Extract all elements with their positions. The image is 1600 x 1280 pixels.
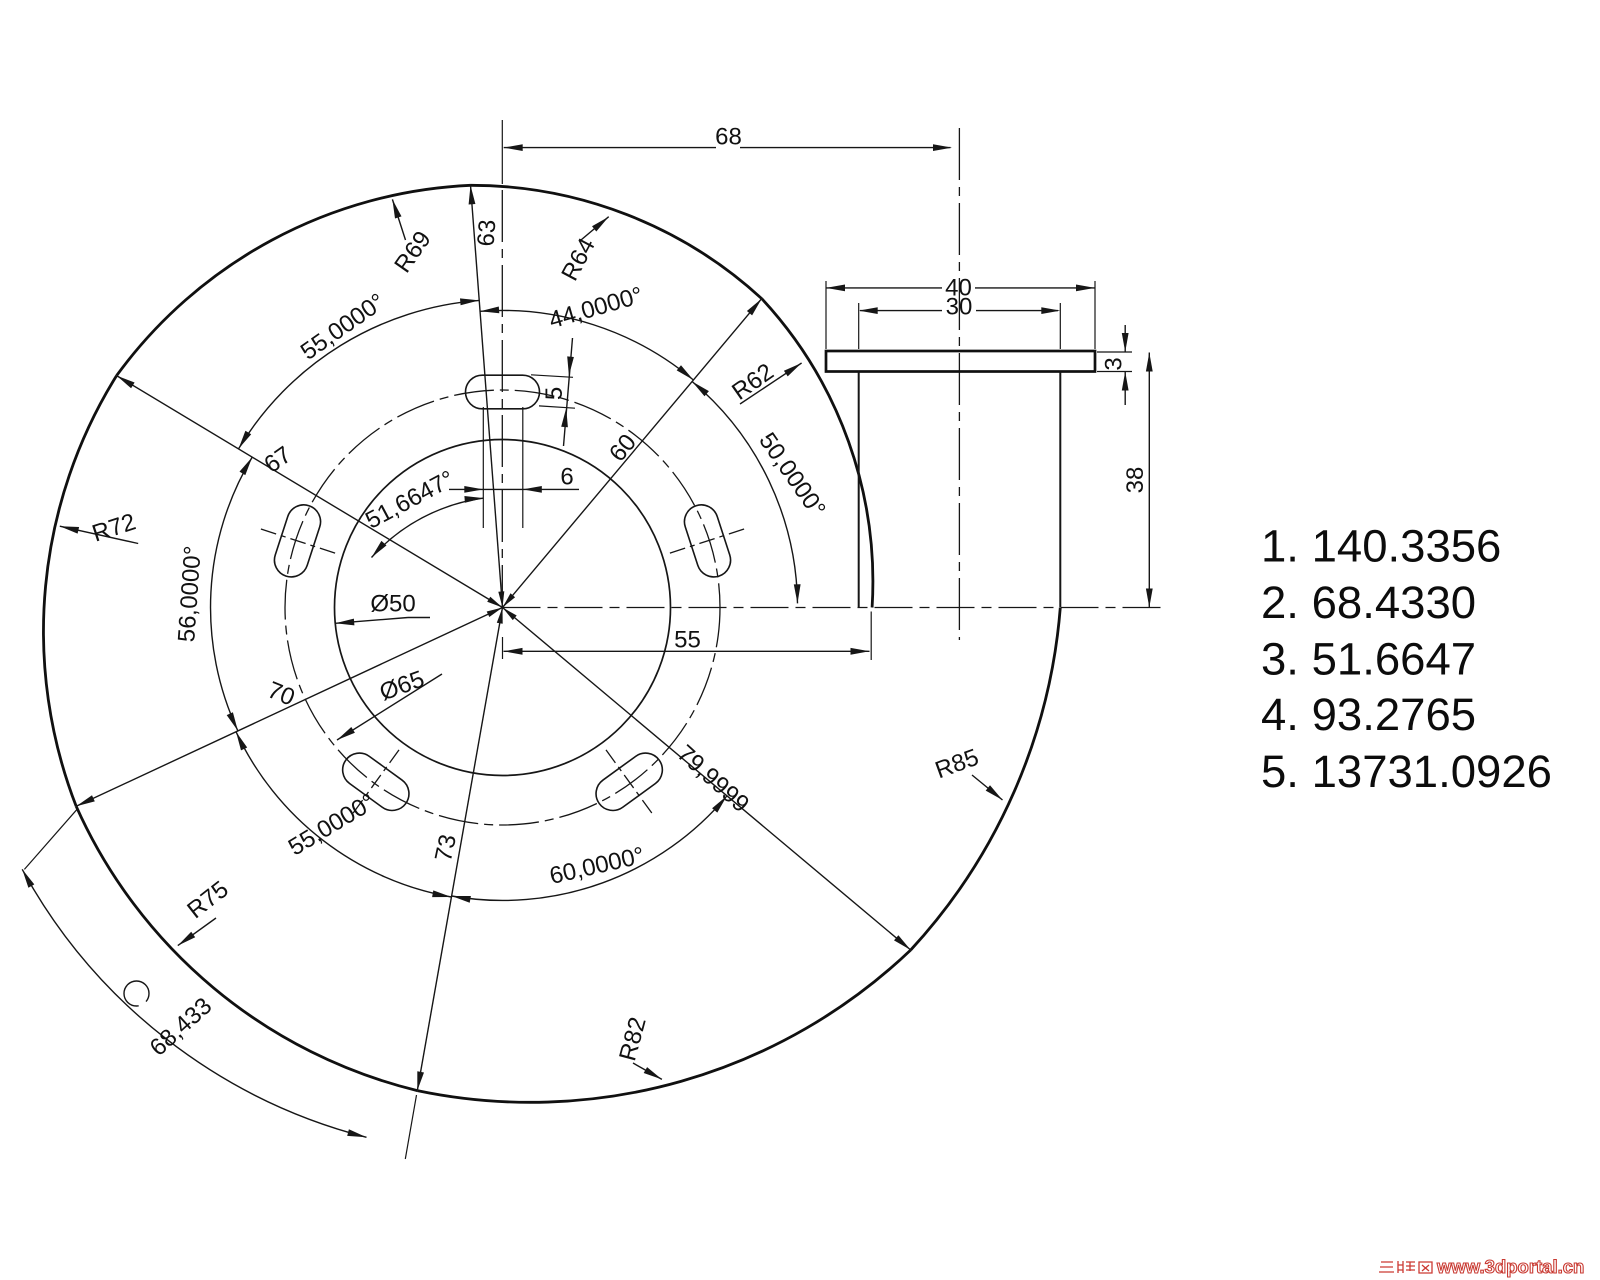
svg-text:www.3dportal.cn: www.3dportal.cn [1436, 1256, 1584, 1277]
svg-text:1. 140.3356: 1. 140.3356 [1261, 521, 1501, 572]
svg-text:6: 6 [560, 464, 573, 491]
svg-text:4. 93.2765: 4. 93.2765 [1261, 689, 1476, 740]
svg-text:30: 30 [946, 294, 973, 321]
svg-text:68: 68 [715, 124, 742, 151]
svg-text:5. 13731.0926: 5. 13731.0926 [1261, 746, 1552, 797]
svg-text:Ø50: Ø50 [370, 591, 415, 618]
svg-text:5: 5 [541, 387, 568, 400]
svg-text:63: 63 [473, 219, 502, 248]
svg-text:2. 68.4330: 2. 68.4330 [1261, 577, 1476, 628]
svg-text:3: 3 [1101, 357, 1128, 370]
svg-text:38: 38 [1122, 467, 1149, 494]
svg-text:3. 51.6647: 3. 51.6647 [1261, 633, 1476, 684]
svg-text:73: 73 [430, 832, 462, 864]
svg-text:55: 55 [674, 627, 701, 654]
